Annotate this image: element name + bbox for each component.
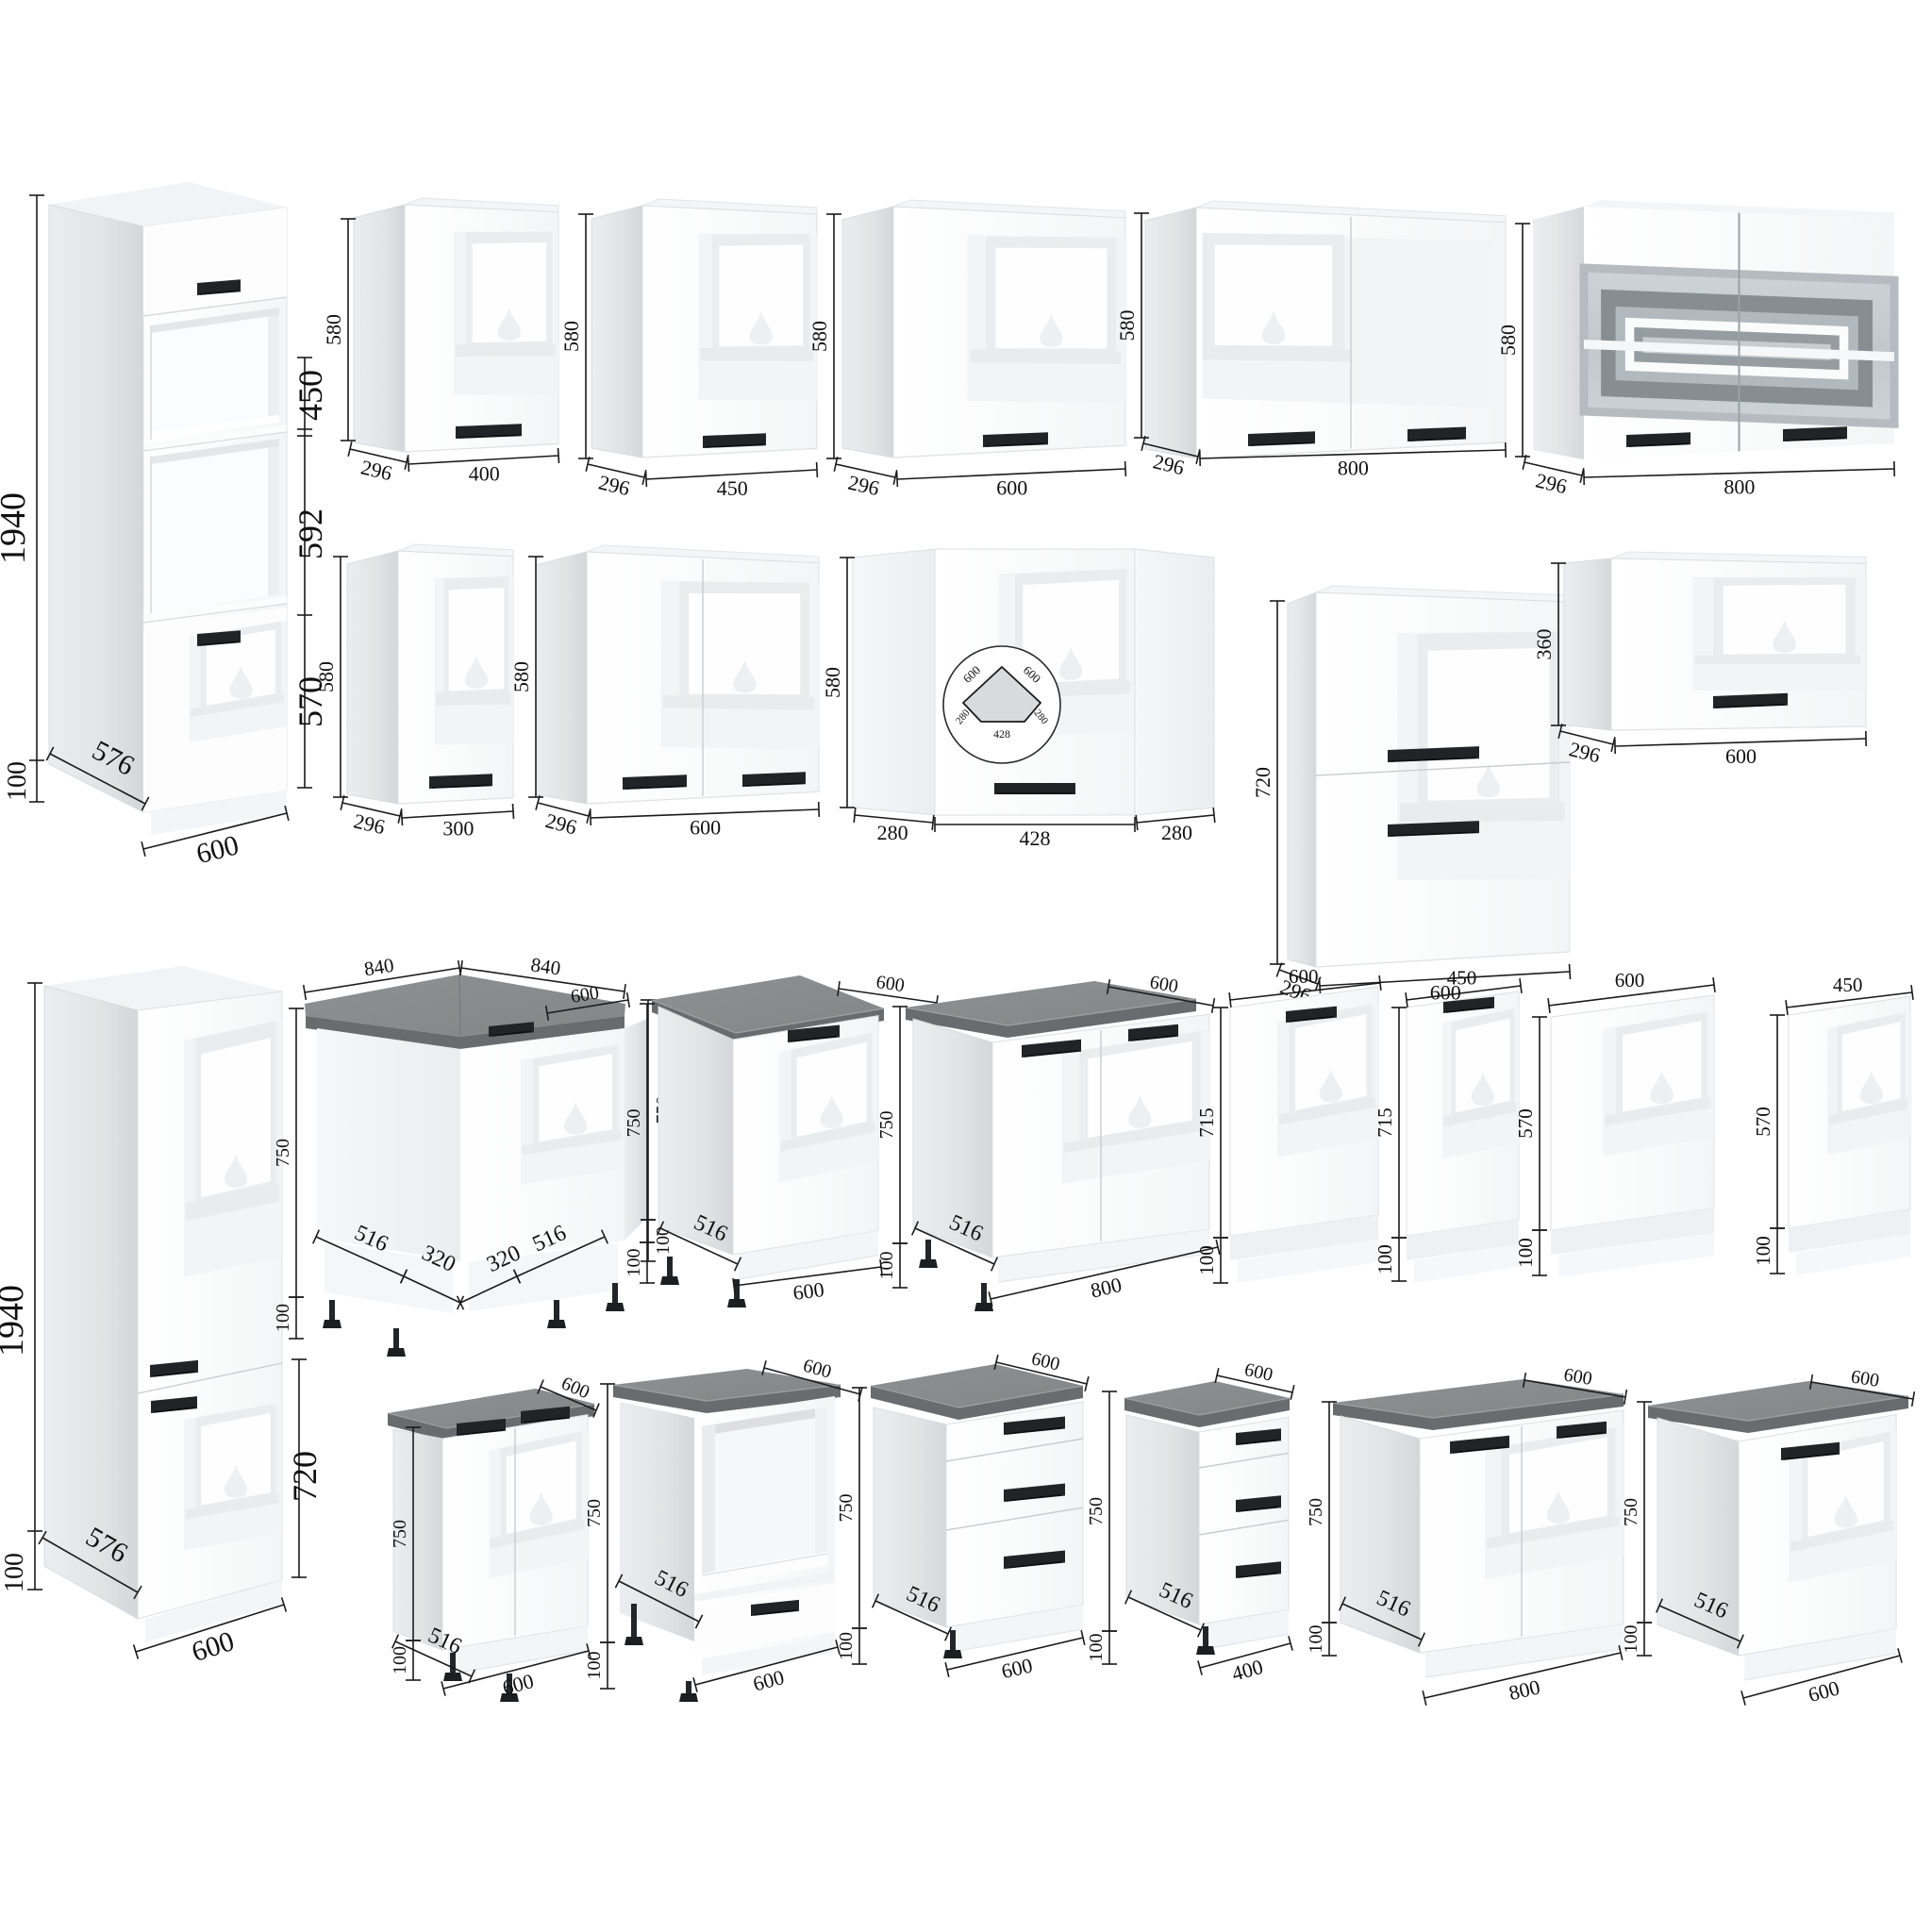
svg-text:750: 750 bbox=[876, 1111, 897, 1140]
svg-text:715: 715 bbox=[1195, 1108, 1218, 1138]
svg-text:360: 360 bbox=[1532, 629, 1556, 660]
svg-text:428: 428 bbox=[993, 727, 1010, 741]
svg-text:450: 450 bbox=[291, 370, 329, 421]
svg-text:100: 100 bbox=[836, 1632, 857, 1660]
svg-text:400: 400 bbox=[469, 462, 500, 486]
svg-text:580: 580 bbox=[1115, 310, 1139, 341]
svg-text:100: 100 bbox=[1374, 1244, 1396, 1274]
svg-text:840: 840 bbox=[529, 953, 562, 979]
svg-text:600: 600 bbox=[1725, 744, 1757, 768]
svg-text:300: 300 bbox=[442, 817, 474, 841]
svg-text:750: 750 bbox=[273, 1139, 293, 1167]
svg-text:100: 100 bbox=[1514, 1238, 1537, 1268]
svg-text:100: 100 bbox=[1195, 1245, 1218, 1275]
svg-text:800: 800 bbox=[1724, 475, 1755, 499]
svg-text:428: 428 bbox=[1020, 826, 1051, 850]
svg-text:715: 715 bbox=[1374, 1108, 1396, 1138]
svg-text:750: 750 bbox=[836, 1494, 857, 1523]
svg-text:750: 750 bbox=[624, 1109, 644, 1138]
svg-text:580: 580 bbox=[322, 314, 345, 345]
svg-text:750: 750 bbox=[1621, 1498, 1641, 1526]
svg-text:280: 280 bbox=[1161, 821, 1192, 844]
svg-text:600: 600 bbox=[874, 972, 906, 996]
svg-text:750: 750 bbox=[584, 1499, 605, 1527]
svg-text:100: 100 bbox=[273, 1304, 293, 1332]
svg-text:720: 720 bbox=[1251, 767, 1274, 798]
svg-text:100: 100 bbox=[390, 1646, 410, 1674]
svg-text:720: 720 bbox=[286, 1451, 324, 1502]
svg-text:100: 100 bbox=[1621, 1625, 1641, 1654]
svg-text:580: 580 bbox=[1496, 325, 1520, 356]
svg-text:570: 570 bbox=[1752, 1107, 1774, 1137]
svg-text:840: 840 bbox=[362, 954, 395, 981]
svg-text:1940: 1940 bbox=[0, 492, 33, 564]
svg-text:600: 600 bbox=[1289, 965, 1319, 988]
svg-text:750: 750 bbox=[1306, 1498, 1326, 1526]
svg-text:570: 570 bbox=[1514, 1108, 1537, 1139]
svg-text:750: 750 bbox=[1086, 1497, 1107, 1525]
svg-text:100: 100 bbox=[624, 1249, 644, 1277]
svg-text:450: 450 bbox=[1833, 974, 1863, 996]
svg-text:1940: 1940 bbox=[0, 1285, 31, 1357]
svg-text:450: 450 bbox=[1447, 966, 1477, 989]
svg-text:100: 100 bbox=[1306, 1625, 1326, 1654]
svg-text:592: 592 bbox=[291, 508, 329, 559]
svg-text:600: 600 bbox=[690, 816, 721, 840]
svg-text:600: 600 bbox=[791, 1277, 825, 1305]
svg-text:600: 600 bbox=[996, 476, 1027, 500]
svg-text:800: 800 bbox=[1338, 457, 1369, 480]
svg-text:580: 580 bbox=[808, 321, 831, 352]
svg-text:450: 450 bbox=[717, 476, 748, 500]
svg-text:580: 580 bbox=[559, 321, 583, 352]
svg-text:570: 570 bbox=[291, 676, 329, 727]
svg-text:600: 600 bbox=[1615, 969, 1645, 991]
svg-text:750: 750 bbox=[390, 1520, 410, 1548]
svg-text:100: 100 bbox=[876, 1252, 897, 1280]
svg-text:100: 100 bbox=[1752, 1236, 1774, 1266]
svg-text:100: 100 bbox=[3, 761, 32, 801]
svg-text:100: 100 bbox=[584, 1652, 605, 1680]
svg-text:580: 580 bbox=[509, 661, 533, 692]
svg-text:100: 100 bbox=[1086, 1634, 1107, 1662]
svg-text:280: 280 bbox=[877, 821, 908, 844]
svg-text:100: 100 bbox=[0, 1553, 29, 1592]
svg-text:580: 580 bbox=[821, 667, 844, 698]
